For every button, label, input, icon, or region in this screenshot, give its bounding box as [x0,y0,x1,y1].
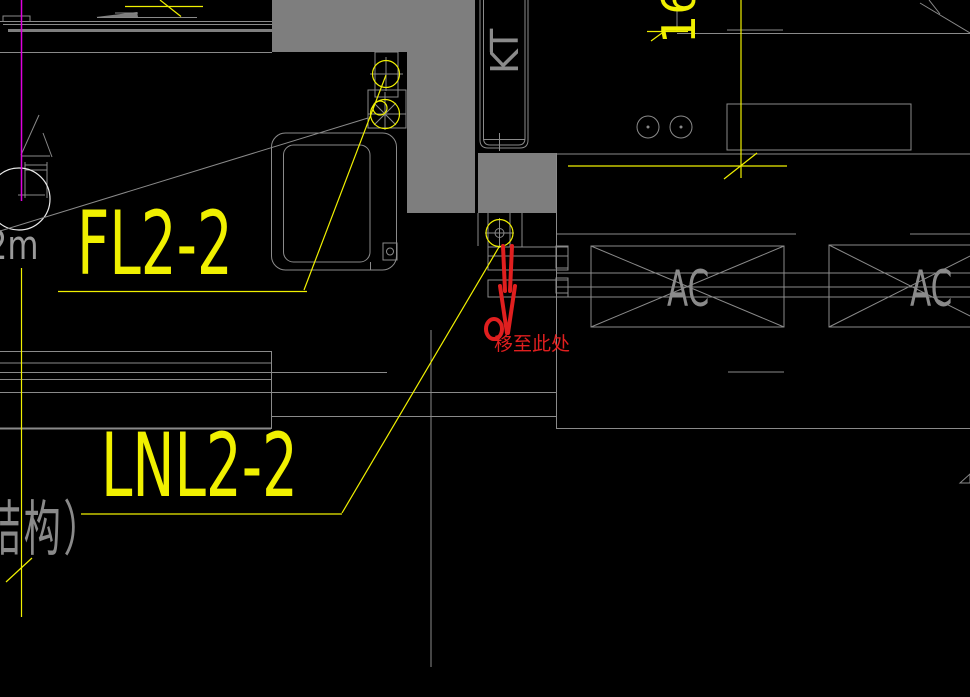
duct-label-kt: KT [486,29,524,74]
move-annotation-graphics [486,246,515,339]
ac-unit-1-label: AC [667,264,709,314]
down-arrow-annotation [500,246,515,333]
dimension-2m-label: 2m [0,226,39,266]
cad-drawing-viewport[interactable]: FL2-2 LNL2-2 KT 16 AC AC 2m 结构） 移至此处 [0,0,970,697]
door-opening-detail [272,133,398,270]
circle-center-dots [647,126,683,129]
kt-duct-shaft [480,0,528,151]
drawing-canvas[interactable] [0,0,970,697]
top-right-structure [556,0,970,154]
top-left-wall-lines [0,13,272,53]
fan-coil-symbol-top [368,52,406,130]
ac-unit-2-label: AC [910,264,952,314]
ac-units-and-walls [556,154,970,483]
fan-label-lnl2-2: LNL2-2 [101,422,298,510]
fan-label-fl2-2: FL2-2 [77,200,233,288]
structure-text-label: 结构） [0,500,103,560]
number-16-label: 16 [656,0,702,44]
duct-connector-stubs [478,213,568,297]
move-here-annotation-text: 移至此处 [494,335,570,354]
wall-fill-regions [8,0,557,213]
